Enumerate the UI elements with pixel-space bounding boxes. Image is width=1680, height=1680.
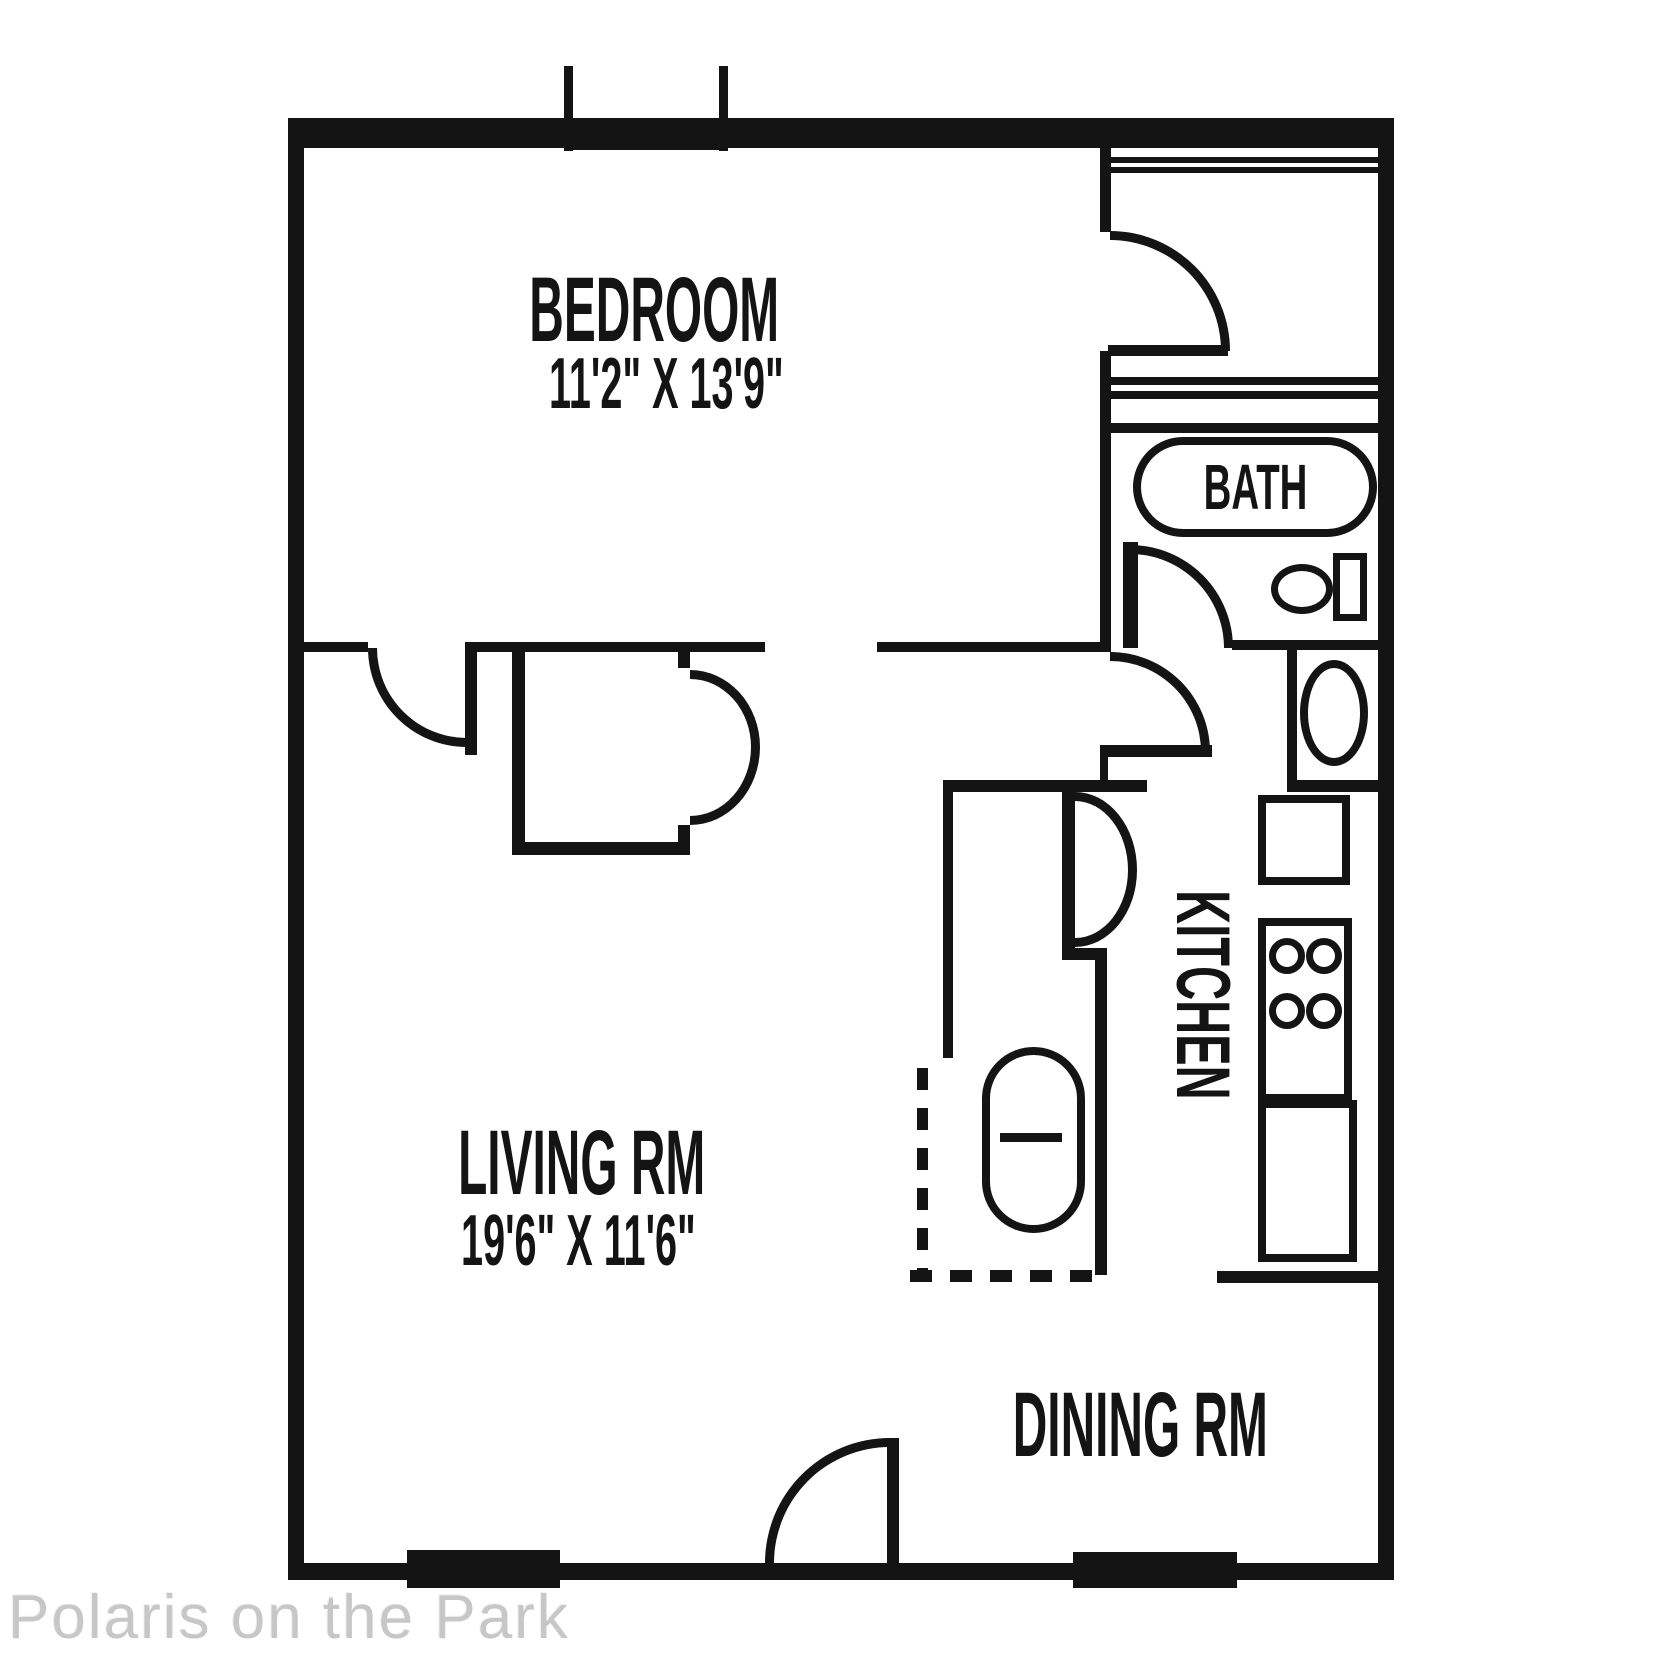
bedroom-dims-box: 11'2" X 13'9" [486, 352, 846, 416]
toilet-bowl [1271, 564, 1333, 614]
bath-label: BATH [1203, 450, 1307, 524]
closet-bifold-door-top [690, 670, 760, 747]
wall-top-inner-face [303, 141, 1378, 148]
dining-label: DINING RM [1012, 1373, 1267, 1478]
entry-closet-shelf-2 [1111, 167, 1378, 173]
fridge [1258, 1100, 1357, 1262]
front-door-swing [765, 1438, 890, 1563]
window-dining-bottom [1073, 1552, 1237, 1588]
watermark-text: Polaris on the Park [8, 1582, 570, 1653]
wall-outer-left [288, 118, 304, 1580]
stove-burner-3 [1269, 993, 1305, 1029]
vanity-south-wall [1287, 780, 1393, 792]
window-bedroom-jamb-right [719, 66, 728, 151]
kitchen-door-swing [1110, 652, 1210, 752]
wall-hall-north [877, 642, 1110, 652]
stove-burner-2 [1306, 938, 1342, 974]
linen-closet-shelf [1111, 391, 1378, 399]
wall-kitchen-south [1217, 1271, 1393, 1283]
wall-bath-south [1232, 640, 1393, 650]
wall-interior-vertical-mid [1100, 351, 1111, 652]
bedroom-door-swing [368, 648, 467, 747]
closet-jamb-bottom [678, 825, 690, 855]
utility-jamb [1062, 792, 1075, 948]
bedroom-label-box: BEDROOM [474, 272, 834, 348]
living-label-box: LIVING RM [402, 1125, 762, 1201]
wall-hall-south [943, 780, 1147, 792]
water-heater-tick [1000, 1133, 1062, 1142]
window-bedroom-jamb-left [564, 66, 573, 151]
entry-closet-shelf-1 [1111, 157, 1378, 163]
living-dims-box: 19'6" X 11'6" [398, 1210, 758, 1272]
kitchen-label-box: KITCHEN [1165, 845, 1241, 1145]
closet-south-wall [512, 842, 690, 855]
bath-door-swing [1130, 545, 1233, 648]
utility-dashed-line-vertical [917, 1068, 928, 1282]
window-bedroom-sill [564, 142, 728, 150]
dining-label-box: DINING RM [960, 1387, 1320, 1463]
wall-interior-vertical-top [1100, 141, 1111, 232]
wall-bath-north [1111, 423, 1378, 433]
closet-bifold-door-bottom [690, 747, 760, 825]
living-dims: 19'6" X 11'6" [461, 1200, 696, 1282]
vanity-sink [1300, 660, 1368, 766]
utility-dashed-line-horizontal [910, 1270, 1095, 1282]
toilet-tank [1333, 553, 1367, 621]
closet-jamb-top [678, 642, 690, 668]
entry-closet-door-swing [1110, 231, 1230, 351]
stove-burner-4 [1306, 993, 1342, 1029]
kitchen-label: KITCHEN [1160, 890, 1247, 1099]
linen-closet-wall [1111, 377, 1378, 385]
wall-pantry-east [1095, 950, 1107, 1275]
closet-west-wall [512, 648, 525, 855]
wall-outer-right [1378, 118, 1394, 1580]
wall-hall-south-return [943, 780, 953, 1058]
floorplan: BATH BEDROOM 11'2" X 13'9" LIVING RM [0, 0, 1680, 1680]
vanity-west-wall [1287, 648, 1297, 783]
bathtub: BATH [1133, 437, 1377, 537]
utility-bifold-door-bottom [1075, 870, 1137, 947]
kitchen-counter-cabinet [1258, 795, 1350, 885]
kitchen-door-jamb [1100, 745, 1108, 785]
bedroom-dims: 11'2" X 13'9" [549, 343, 784, 425]
wall-outer-top [288, 118, 1394, 141]
wall-bedroom-south-1 [303, 642, 368, 652]
stove-burner-1 [1269, 938, 1305, 974]
utility-bifold-door-top [1075, 792, 1137, 870]
